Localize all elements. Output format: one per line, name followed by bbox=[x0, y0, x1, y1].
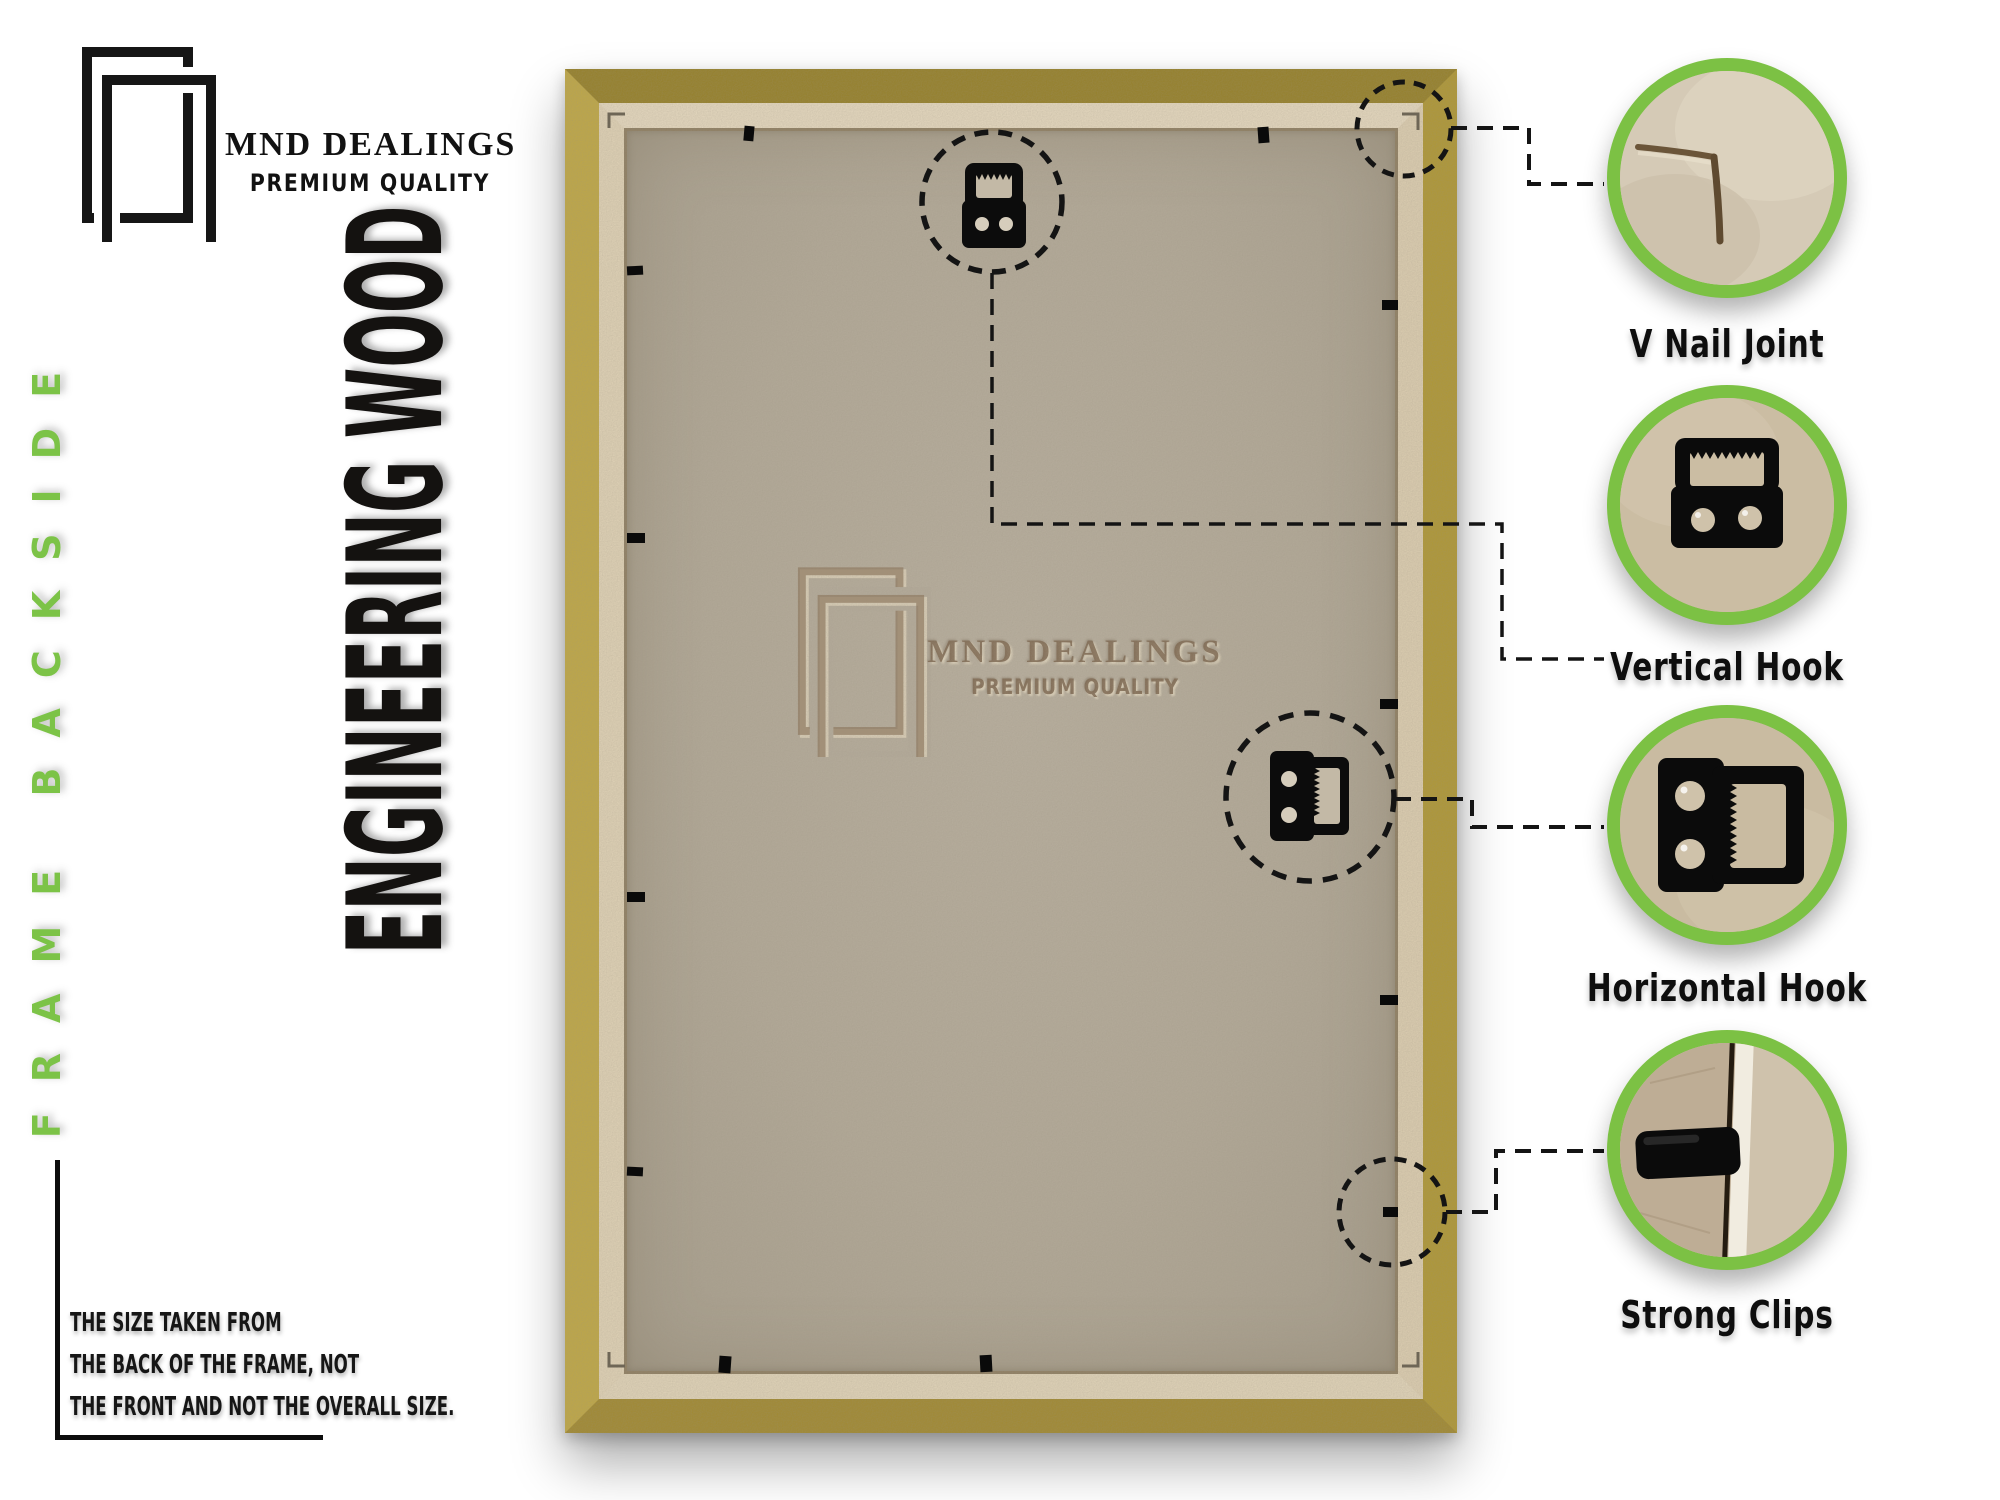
note-vertical-rule bbox=[55, 1160, 60, 1440]
mdf-board: MND DEALINGS PREMIUM QUALITY bbox=[624, 128, 1398, 1374]
watermark-text: MND DEALINGS PREMIUM QUALITY bbox=[927, 634, 1223, 699]
brand-tagline: PREMIUM QUALITY bbox=[247, 169, 494, 197]
callout-label-v-nail-joint: V Nail Joint bbox=[1587, 322, 1868, 366]
connector-v-nail bbox=[1451, 128, 1604, 184]
brand-logo-frames-icon bbox=[80, 46, 220, 242]
product-infographic: MND DEALINGS PREMIUM QUALITY FRAME BACKS… bbox=[0, 0, 2000, 1500]
brand-block: MND DEALINGS PREMIUM QUALITY bbox=[225, 126, 515, 197]
watermark-tagline: PREMIUM QUALITY bbox=[945, 675, 1205, 699]
strong-clip-detail-icon bbox=[1620, 1043, 1834, 1257]
horizontal-hook-detail-icon bbox=[1620, 718, 1834, 932]
brand-name: MND DEALINGS bbox=[225, 126, 515, 164]
engineering-wood-banner: ENGINEERING WOOD bbox=[285, 200, 511, 960]
watermark-name: MND DEALINGS bbox=[927, 634, 1223, 671]
callout-label-strong-clips: Strong Clips bbox=[1587, 1293, 1868, 1337]
watermark-logo-icon bbox=[793, 563, 931, 757]
frame-inner-lip: MND DEALINGS PREMIUM QUALITY bbox=[599, 103, 1423, 1399]
callout-circle-vertical-hook bbox=[1607, 385, 1847, 625]
note-horizontal-rule bbox=[55, 1435, 323, 1440]
vertical-hook-detail-icon bbox=[1620, 398, 1834, 612]
size-note: THE SIZE TAKEN FROM THE BACK OF THE FRAM… bbox=[70, 1302, 454, 1428]
size-note-line-3: THE FRONT AND NOT THE OVERALL SIZE. bbox=[70, 1386, 454, 1428]
callout-circle-v-nail-joint bbox=[1607, 58, 1847, 298]
frame-backside-banner: FRAME BACKSIDE bbox=[22, 330, 72, 1150]
callout-label-horizontal-hook: Horizontal Hook bbox=[1587, 966, 1868, 1010]
callout-circle-horizontal-hook bbox=[1607, 705, 1847, 945]
size-note-line-2: THE BACK OF THE FRAME, NOT bbox=[70, 1344, 454, 1386]
v-nail-joint-photo bbox=[1620, 71, 1834, 285]
callout-label-vertical-hook: Vertical Hook bbox=[1587, 645, 1868, 689]
size-note-line-1: THE SIZE TAKEN FROM bbox=[70, 1302, 454, 1344]
callout-circle-strong-clips bbox=[1607, 1030, 1847, 1270]
connector-strong-clips bbox=[1446, 1151, 1604, 1212]
picture-frame-back: MND DEALINGS PREMIUM QUALITY bbox=[565, 69, 1457, 1433]
